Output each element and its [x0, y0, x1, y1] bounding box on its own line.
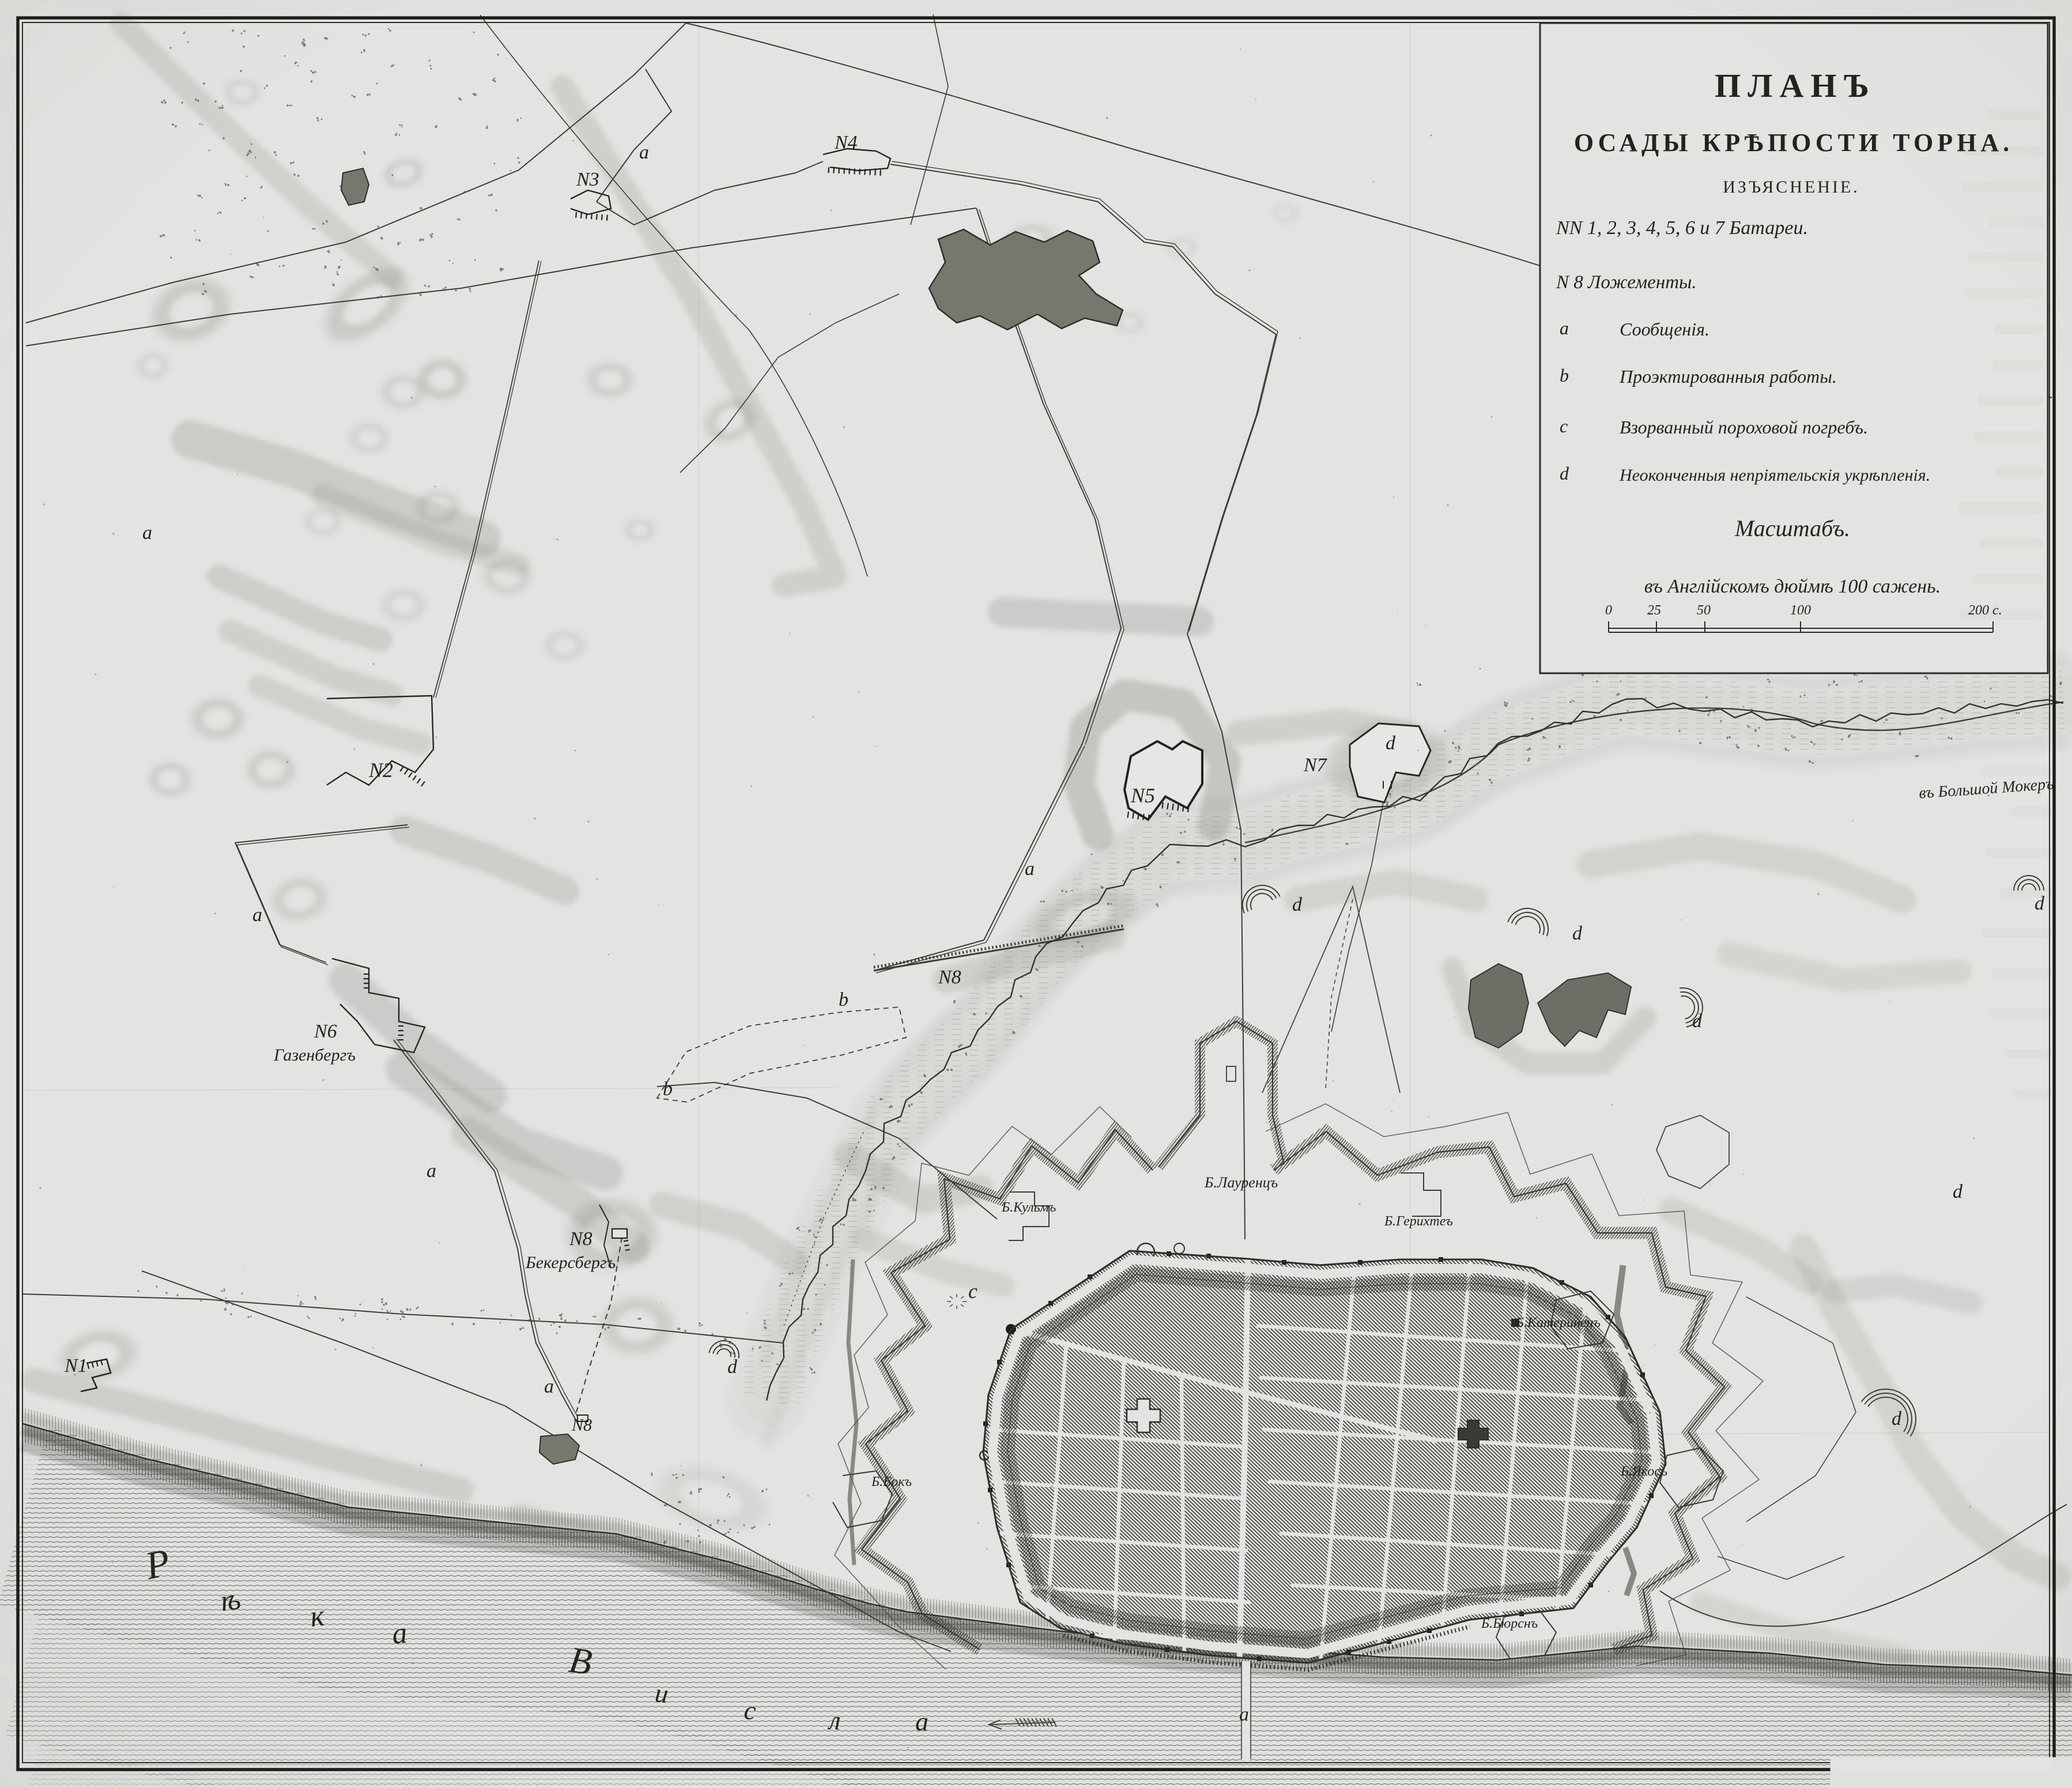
svg-text:d: d — [727, 1356, 738, 1378]
svg-text:Сообщенія.: Сообщенія. — [1620, 319, 1709, 340]
svg-text:100: 100 — [1790, 603, 1811, 618]
svg-text:a: a — [1560, 318, 1569, 338]
svg-text:Б.Бокъ: Б.Бокъ — [871, 1474, 912, 1489]
svg-text:a: a — [142, 522, 152, 544]
svg-text:d: d — [1560, 463, 1569, 484]
svg-text:N8: N8 — [569, 1228, 592, 1250]
svg-text:Проэктированныя работы.: Проэктированныя работы. — [1619, 366, 1837, 387]
svg-text:N4: N4 — [834, 132, 858, 153]
svg-text:N7: N7 — [1303, 755, 1328, 776]
svg-text:N 8 Ложементы.: N 8 Ложементы. — [1556, 272, 1697, 293]
svg-text:NN 1, 2, 3, 4, 5, 6 и 7 Батаре: NN 1, 2, 3, 4, 5, 6 и 7 Батареи. — [1556, 217, 1808, 239]
svg-text:N5: N5 — [1130, 784, 1155, 807]
svg-text:а: а — [915, 1707, 929, 1736]
svg-text:N8: N8 — [571, 1416, 592, 1435]
svg-text:d: d — [1692, 1010, 1703, 1032]
svg-text:a: a — [1239, 1704, 1249, 1725]
svg-text:a: a — [544, 1376, 554, 1397]
svg-text:d: d — [1386, 733, 1396, 754]
svg-text:b: b — [663, 1078, 673, 1100]
svg-text:л: л — [827, 1706, 841, 1736]
svg-text:Б.Бюрснъ: Б.Бюрснъ — [1481, 1616, 1538, 1631]
svg-text:с: с — [743, 1695, 757, 1725]
svg-text:25: 25 — [1647, 603, 1661, 618]
svg-text:N1: N1 — [64, 1355, 88, 1376]
svg-text:N2: N2 — [368, 759, 393, 782]
svg-text:N8: N8 — [938, 967, 961, 988]
svg-text:0: 0 — [1605, 603, 1612, 618]
svg-text:Б.Кульмъ: Б.Кульмъ — [1001, 1200, 1056, 1215]
svg-text:a: a — [639, 142, 649, 163]
svg-text:въ Англійскомъ дюймѣ 100 сажен: въ Англійскомъ дюймѣ 100 сажень. — [1644, 576, 1941, 597]
svg-text:Масштабъ.: Масштабъ. — [1734, 515, 1850, 541]
svg-text:a: a — [427, 1160, 436, 1182]
svg-text:N6: N6 — [314, 1021, 337, 1042]
svg-text:c: c — [968, 1280, 977, 1303]
svg-text:ПЛАНЪ: ПЛАНЪ — [1715, 67, 1876, 104]
svg-text:Б.Герихтеъ: Б.Герихтеъ — [1384, 1214, 1453, 1229]
svg-text:Бекерсбергъ: Бекерсбергъ — [525, 1253, 616, 1272]
svg-text:ИЗЪЯСНЕНІЕ.: ИЗЪЯСНЕНІЕ. — [1723, 178, 1860, 197]
svg-text:Газенбергъ: Газенбергъ — [273, 1046, 356, 1065]
svg-text:d: d — [1292, 894, 1303, 915]
svg-text:d: d — [1892, 1408, 1902, 1429]
svg-text:ОСАДЫ КРѢПОСТИ ТОРНА.: ОСАДЫ КРѢПОСТИ ТОРНА. — [1574, 129, 2013, 157]
svg-text:d: d — [1953, 1181, 1963, 1202]
svg-text:b: b — [1560, 365, 1569, 386]
svg-text:Б.Якосъ: Б.Якосъ — [1620, 1464, 1667, 1479]
svg-text:a: a — [1025, 858, 1035, 880]
svg-text:Б.Катериненъ: Б.Катериненъ — [1515, 1315, 1601, 1330]
svg-text:N3: N3 — [576, 169, 599, 190]
svg-text:d: d — [1572, 923, 1583, 944]
svg-text:a: a — [252, 904, 262, 926]
svg-text:50: 50 — [1697, 603, 1711, 618]
svg-text:c: c — [1560, 416, 1568, 436]
svg-text:Б.Лауренцъ: Б.Лауренцъ — [1204, 1174, 1278, 1191]
svg-text:b: b — [839, 989, 848, 1010]
svg-text:Неоконченныя непріятельскія ук: Неоконченныя непріятельскія укрѣпленія. — [1619, 466, 1930, 485]
svg-text:Взорванный пороховой погребъ.: Взорванный пороховой погребъ. — [1620, 417, 1868, 437]
svg-text:200 c.: 200 c. — [1968, 603, 2002, 618]
